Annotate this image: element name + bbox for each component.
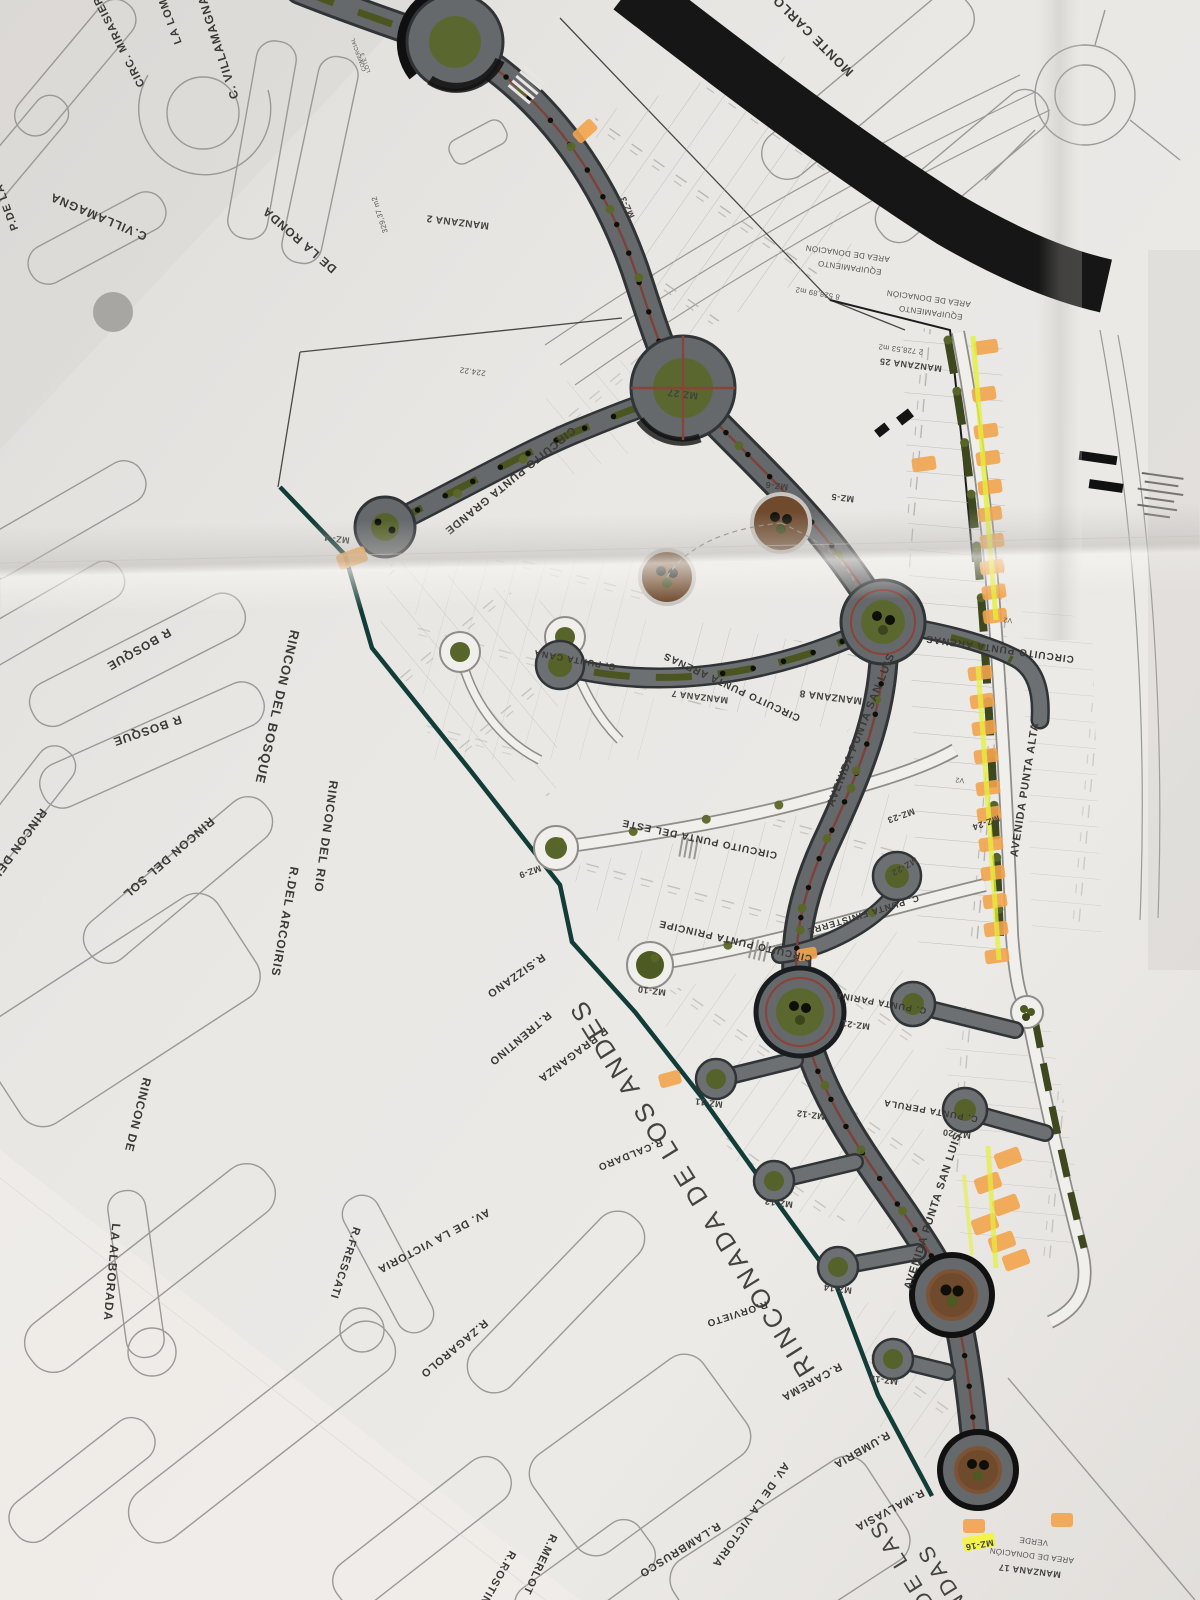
roundabout-5 [912,1255,992,1335]
site-plan-map: LA LOMA CIRC. MIRASIER C. VILLAMAGNA P.D… [0,0,1200,1600]
area-label-v2-b: V2 [955,775,965,783]
roundabout-4 [756,968,844,1056]
site-plan-photo: LA LOMA CIRC. MIRASIER C. VILLAMAGNA P.D… [0,0,1200,1600]
roundabout-terminal [940,1432,1016,1508]
area-label-v2-a: V2 [1003,615,1013,623]
